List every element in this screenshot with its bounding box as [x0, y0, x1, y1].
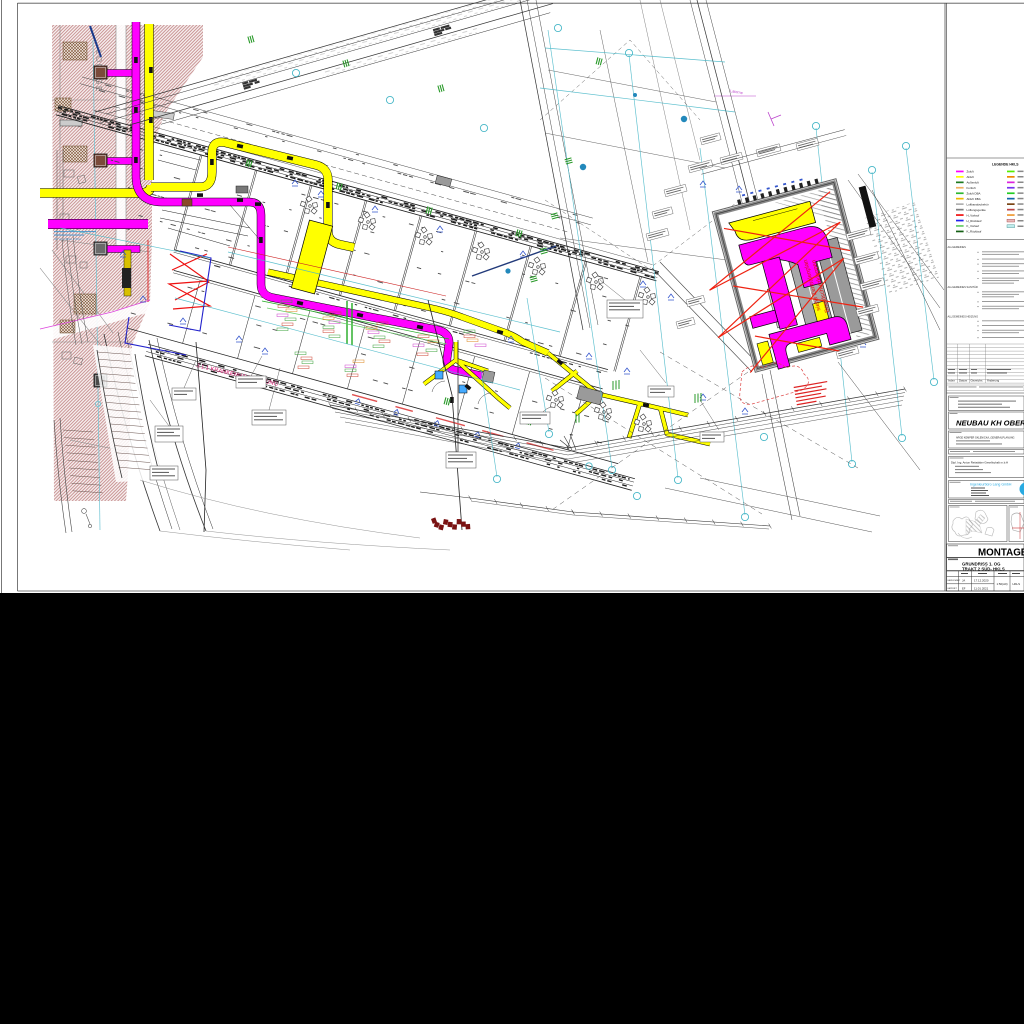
svg-text:Zuluft DBA: Zuluft DBA	[967, 192, 981, 196]
svg-text:Dipl. Ing. Anton Rettstätter G: Dipl. Ing. Anton Rettstätter Gesellschaf…	[951, 461, 1008, 465]
svg-text:H_Rücklauf: H_Rücklauf	[967, 219, 982, 223]
svg-text:Zuluft: Zuluft	[967, 170, 974, 174]
svg-text:Außenluft: Außenluft	[967, 181, 980, 185]
svg-text:17.12.2020: 17.12.2020	[974, 579, 989, 583]
svg-text:Datum: Datum	[959, 379, 968, 383]
svg-text:Gezeichn.: Gezeichn.	[971, 379, 984, 383]
svg-text:JA: JA	[962, 579, 965, 583]
svg-text:HKLS: HKLS	[1013, 582, 1021, 586]
svg-text:NEUBAU KH OBERWART: NEUBAU KH OBERWART	[956, 419, 1024, 428]
svg-text:4P Vorn-Mitte 2,80m: 4P Vorn-Mitte 2,80m	[54, 237, 82, 241]
svg-text:1:50(A0): 1:50(A0)	[997, 582, 1008, 586]
svg-text:Abluft DBA: Abluft DBA	[967, 197, 981, 201]
svg-text:ALLGEMEINES SANITÄR: ALLGEMEINES SANITÄR	[948, 285, 978, 289]
svg-text:Luftkanalzubehör: Luftkanalzubehör	[967, 202, 989, 206]
svg-text:Abluft: Abluft	[967, 175, 975, 179]
svg-text:Index: Index	[948, 379, 955, 383]
svg-text:LEGENDE HKLS: LEGENDE HKLS	[992, 163, 1019, 167]
svg-text:EF: EF	[962, 587, 966, 591]
svg-text:GEZEICHNET: GEZEICHNET	[947, 580, 961, 582]
svg-text:K_Rücklauf: K_Rücklauf	[967, 230, 982, 234]
svg-text:Ingenieurbüro Lang GmbH: Ingenieurbüro Lang GmbH	[970, 483, 1012, 487]
svg-text:TRAKT 2 SÜD- HKLS: TRAKT 2 SÜD- HKLS	[962, 566, 1005, 571]
svg-text:Fortluft: Fortluft	[967, 186, 976, 190]
svg-text:ALLGEMEINES HEIZUNG: ALLGEMEINES HEIZUNG	[948, 315, 979, 319]
svg-text:K_Vorlauf: K_Vorlauf	[967, 224, 980, 228]
svg-text:Änderung: Änderung	[987, 379, 1000, 383]
svg-text:GEPRÜFT: GEPRÜFT	[947, 587, 957, 590]
svg-text:ALLGEMEINES: ALLGEMEINES	[948, 245, 967, 249]
svg-text:H_Vorlauf: H_Vorlauf	[967, 213, 980, 217]
svg-text:11.01.2021: 11.01.2021	[974, 587, 989, 591]
svg-text:Lüftungsgeräte: Lüftungsgeräte	[967, 208, 987, 212]
svg-text:ARGE KEMPER SKLENICKA_GENERALP: ARGE KEMPER SKLENICKA_GENERALPLANUNG	[956, 437, 1015, 440]
svg-text:MONTAGEPLAN: MONTAGEPLAN	[978, 548, 1024, 559]
